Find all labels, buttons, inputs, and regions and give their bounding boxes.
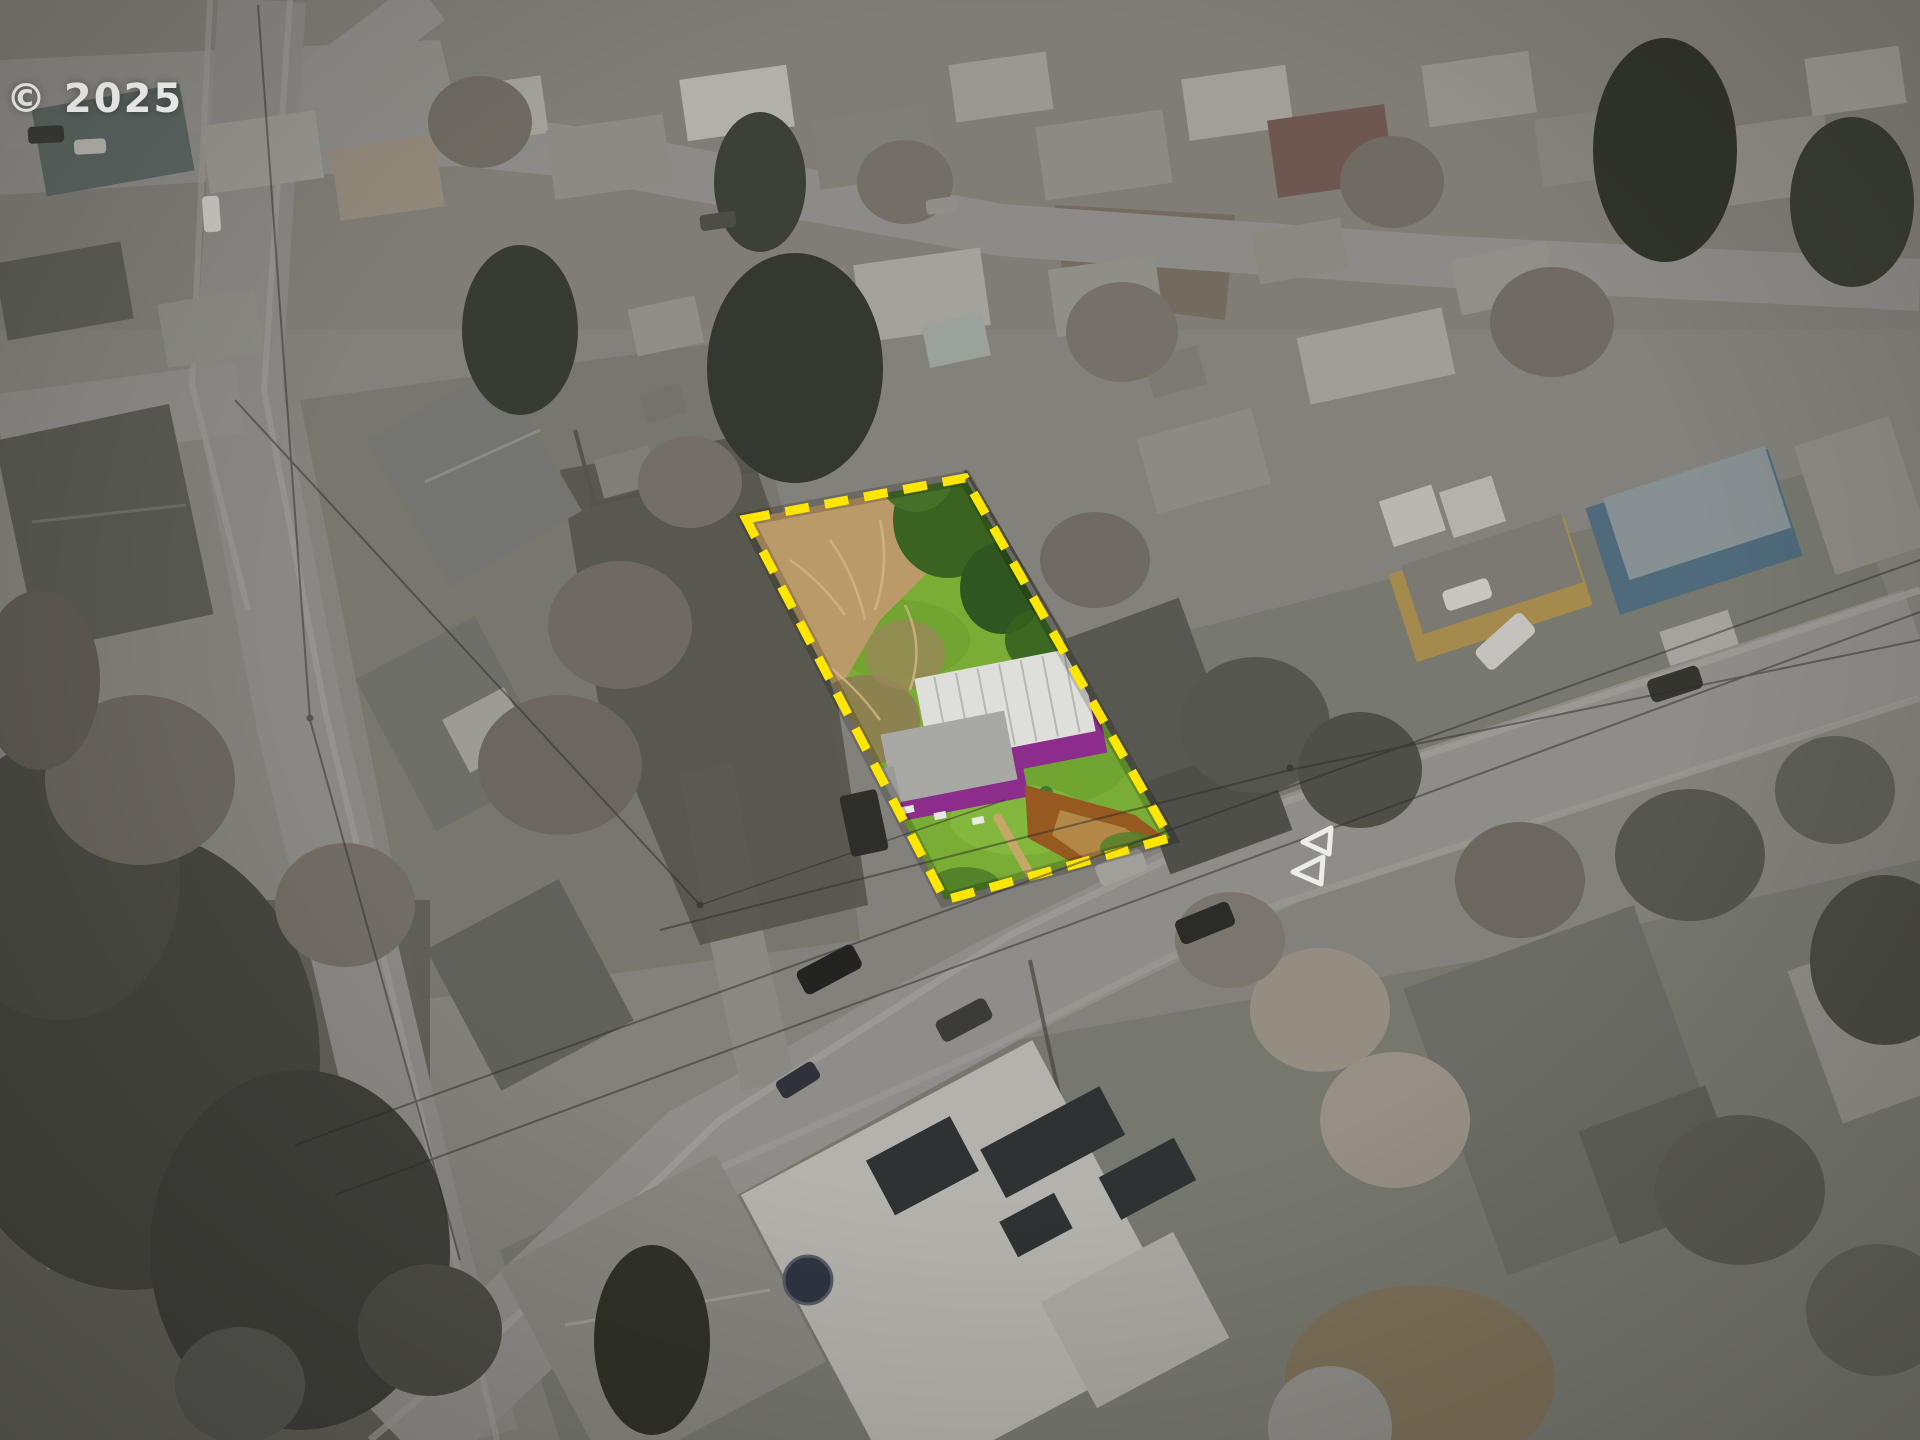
bare-tree [1066,282,1178,382]
conifer-tree [707,253,883,483]
bare-tree [1340,136,1444,228]
tree-canopy [175,1327,305,1440]
bare-tree [1455,822,1585,938]
conifer-tree [714,112,806,252]
copyright-text: © 2025 [6,76,183,122]
tree-canopy [1655,1115,1825,1265]
conifer-tree [1593,38,1737,262]
aerial-photo-canvas [0,0,1920,1440]
utility-pole [697,902,704,909]
copyright-watermark: © 2025 [6,76,183,122]
car [202,195,221,232]
tree-canopy [358,1264,502,1396]
bare-tree [1040,512,1150,608]
utility-pole [1287,765,1294,772]
bare-tree [275,843,415,967]
conifer-tree [1790,117,1914,287]
bare-tree [428,76,532,168]
conifer-tree [594,1245,710,1435]
car [28,125,65,144]
tree-canopy [1615,789,1765,921]
utility-pole [307,715,314,722]
bare-tree [1490,267,1614,377]
aerial-photo: © 2025 [0,0,1920,1440]
bare-tree [638,436,742,528]
bare-tree [548,561,692,689]
house-roof [330,135,444,221]
car [74,138,107,155]
tree-canopy [1298,712,1422,828]
bare-tree [1320,1052,1470,1188]
tree-canopy [1775,736,1895,844]
trampoline [784,1256,832,1304]
conifer-tree [462,245,578,415]
